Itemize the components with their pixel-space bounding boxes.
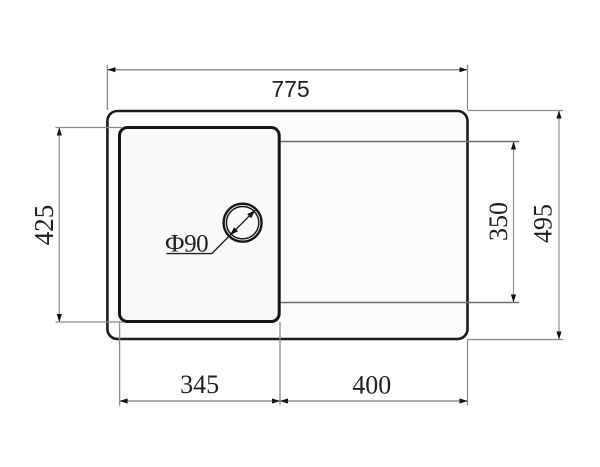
svg-text:425: 425 (29, 205, 59, 246)
svg-text:775: 775 (271, 76, 309, 102)
svg-text:350: 350 (484, 202, 513, 241)
svg-text:495: 495 (529, 204, 558, 243)
svg-text:400: 400 (352, 371, 391, 400)
svg-text:345: 345 (180, 370, 219, 399)
svg-text:Ф90: Ф90 (165, 230, 208, 257)
